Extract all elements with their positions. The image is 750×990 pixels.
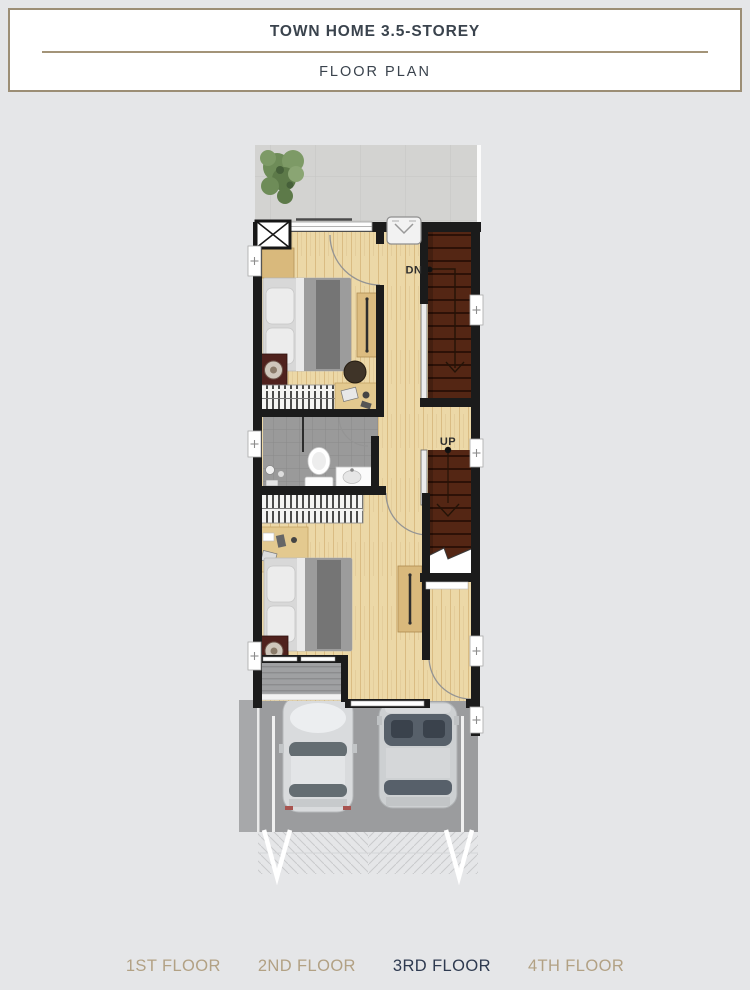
car-left — [279, 696, 357, 812]
ac-unit-icon — [387, 217, 421, 244]
shaft — [256, 221, 290, 248]
stairs-down-label: DN — [406, 265, 423, 277]
car-right — [377, 702, 459, 808]
sliding-door-glass — [263, 657, 297, 661]
entry-window — [351, 701, 424, 706]
driveway-hatch — [258, 830, 478, 877]
header-divider — [42, 51, 708, 53]
floor-plan-page: TOWN HOME 3.5-STOREY FLOOR PLAN — [0, 0, 750, 990]
pillow — [266, 288, 294, 324]
sink-icon — [336, 467, 375, 489]
tab-3rd-floor[interactable]: 3RD FLOOR — [393, 957, 491, 976]
page-subtitle: FLOOR PLAN — [10, 64, 740, 80]
header: TOWN HOME 3.5-STOREY FLOOR PLAN — [8, 8, 742, 92]
hall-cabinet — [398, 566, 422, 632]
stairs-up-label: UP — [440, 436, 456, 448]
tab-2nd-floor[interactable]: 2ND FLOOR — [258, 957, 356, 976]
bench — [357, 293, 378, 357]
floor-selector: 1ST FLOOR 2ND FLOOR 3RD FLOOR 4TH FLOOR — [0, 957, 750, 976]
balcony — [259, 663, 345, 700]
page-title: TOWN HOME 3.5-STOREY — [10, 23, 740, 41]
clothes-rack — [258, 494, 363, 523]
speaker — [260, 354, 287, 385]
sliding-door-glass — [301, 657, 335, 661]
tab-1st-floor[interactable]: 1ST FLOOR — [126, 957, 221, 976]
tab-4th-floor[interactable]: 4TH FLOOR — [528, 957, 624, 976]
pillow — [267, 566, 295, 602]
clothes-rack — [258, 385, 336, 412]
chair — [344, 361, 366, 383]
door-sill — [426, 582, 468, 589]
wardrobe — [262, 248, 294, 278]
floor-plan-drawing: DN UP — [230, 140, 500, 885]
bathroom — [263, 415, 378, 490]
stairs-down — [421, 232, 471, 404]
desk — [335, 383, 377, 413]
